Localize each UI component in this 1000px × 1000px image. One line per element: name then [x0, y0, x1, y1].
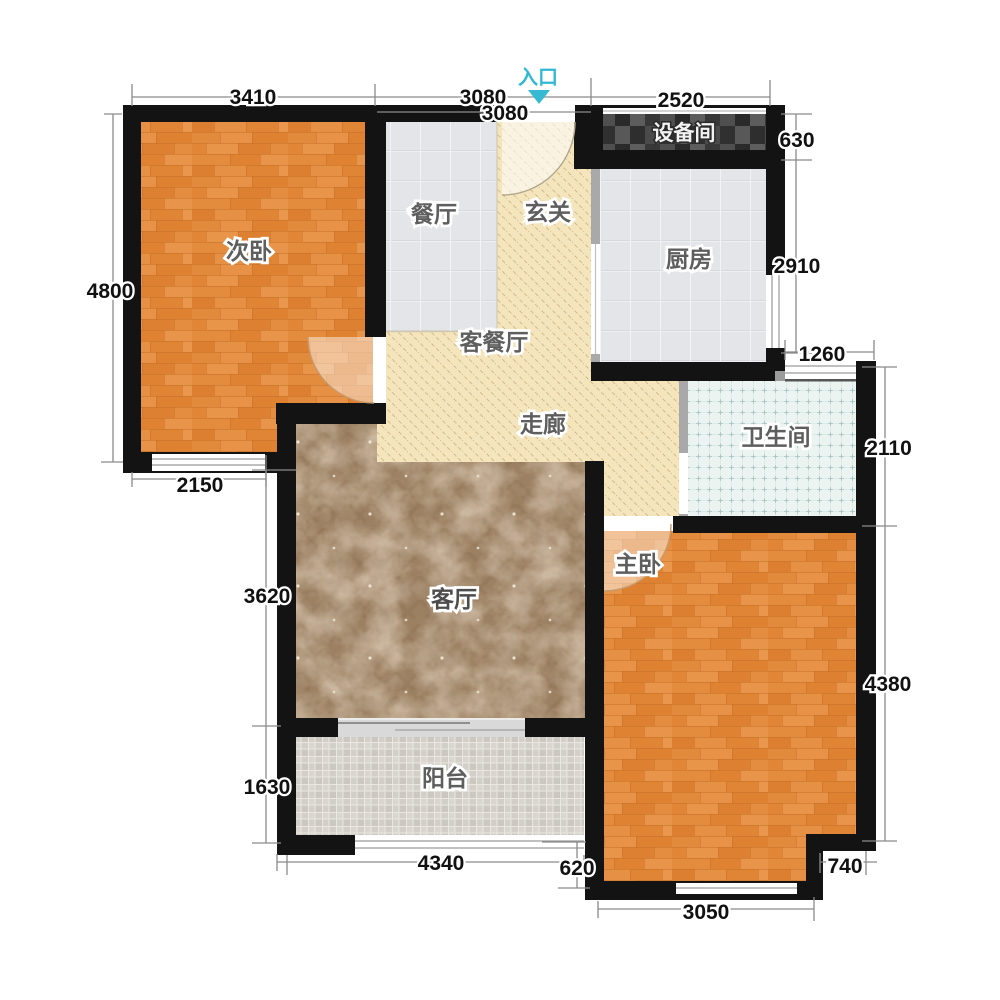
svg-text:次卧: 次卧: [226, 238, 272, 264]
svg-text:3080: 3080: [482, 102, 529, 125]
svg-text:620: 620: [559, 857, 594, 880]
svg-text:630: 630: [779, 129, 814, 152]
svg-text:客餐厅: 客餐厅: [460, 329, 529, 355]
svg-text:餐厅: 餐厅: [411, 201, 457, 227]
svg-text:3410: 3410: [230, 86, 277, 109]
svg-text:3050: 3050: [683, 901, 730, 924]
svg-text:客厅: 客厅: [431, 586, 477, 612]
svg-text:主卧: 主卧: [615, 551, 661, 577]
svg-text:2910: 2910: [774, 255, 821, 278]
svg-text:2150: 2150: [177, 474, 224, 497]
svg-text:2110: 2110: [866, 437, 912, 460]
svg-text:设备间: 设备间: [653, 121, 716, 145]
svg-text:4380: 4380: [865, 673, 912, 696]
svg-text:2520: 2520: [658, 89, 705, 112]
svg-text:1630: 1630: [244, 776, 291, 799]
svg-text:740: 740: [827, 855, 862, 878]
svg-text:4800: 4800: [87, 280, 134, 303]
svg-text:走廊: 走廊: [520, 411, 566, 437]
svg-text:卫生间: 卫生间: [742, 424, 811, 450]
svg-text:4340: 4340: [418, 852, 465, 875]
svg-text:入口: 入口: [518, 66, 558, 89]
svg-text:玄关: 玄关: [525, 199, 571, 225]
svg-text:厨房: 厨房: [666, 246, 712, 272]
svg-text:3620: 3620: [244, 585, 291, 608]
svg-text:阳台: 阳台: [422, 765, 468, 791]
svg-text:1260: 1260: [799, 343, 846, 366]
